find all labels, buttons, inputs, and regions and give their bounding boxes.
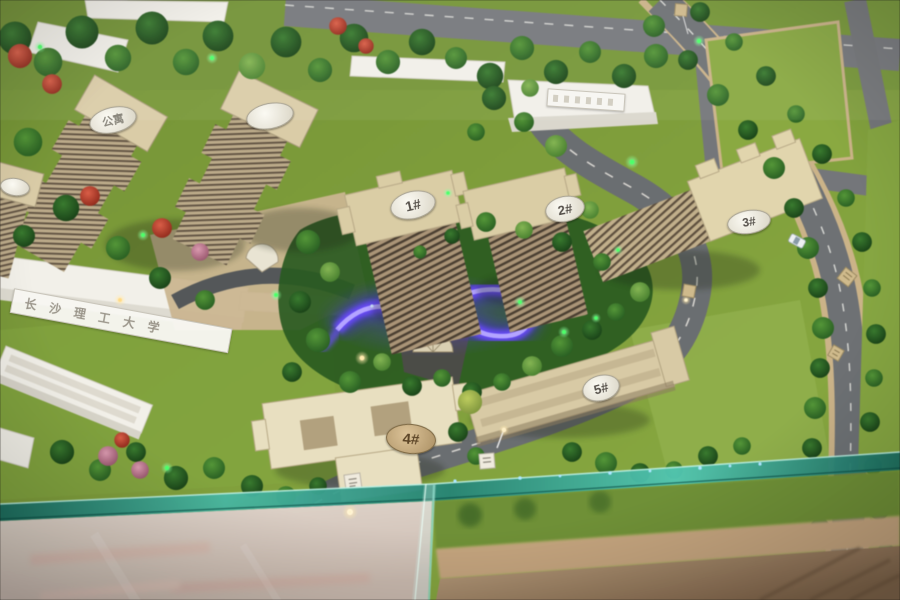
model-photo-stage: 公寓 1# 2# 3# 4# 5# 长沙理工大学 <box>0 0 900 600</box>
vignette <box>0 0 900 600</box>
scale-model-photo <box>0 0 900 600</box>
